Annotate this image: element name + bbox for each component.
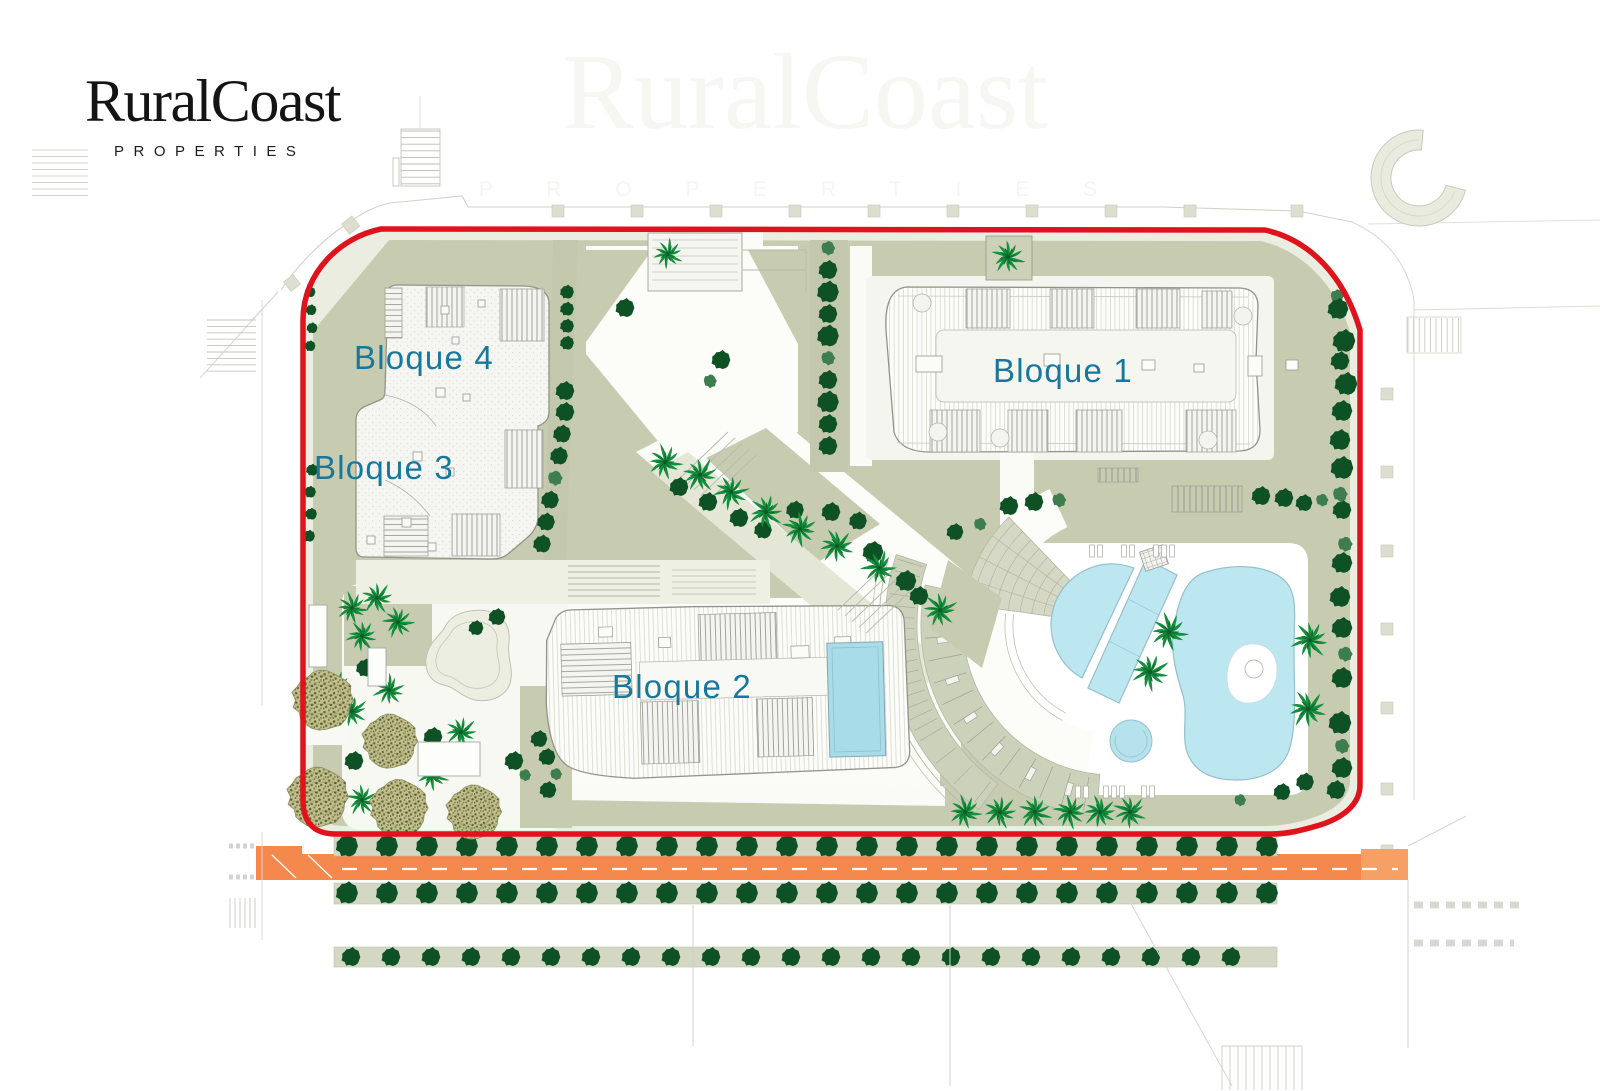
svg-text:Bloque 4: Bloque 4 <box>354 339 494 376</box>
svg-text:Bloque 3: Bloque 3 <box>314 449 454 486</box>
svg-text:P R O P E R T I E S: P R O P E R T I E S <box>479 178 1121 201</box>
svg-text:RuralCoast: RuralCoast <box>562 33 1048 152</box>
svg-text:Bloque 1: Bloque 1 <box>993 352 1133 389</box>
svg-text:RuralCoast: RuralCoast <box>85 68 342 134</box>
svg-text:PROPERTIES: PROPERTIES <box>114 143 305 160</box>
svg-text:Bloque 2: Bloque 2 <box>612 668 752 705</box>
